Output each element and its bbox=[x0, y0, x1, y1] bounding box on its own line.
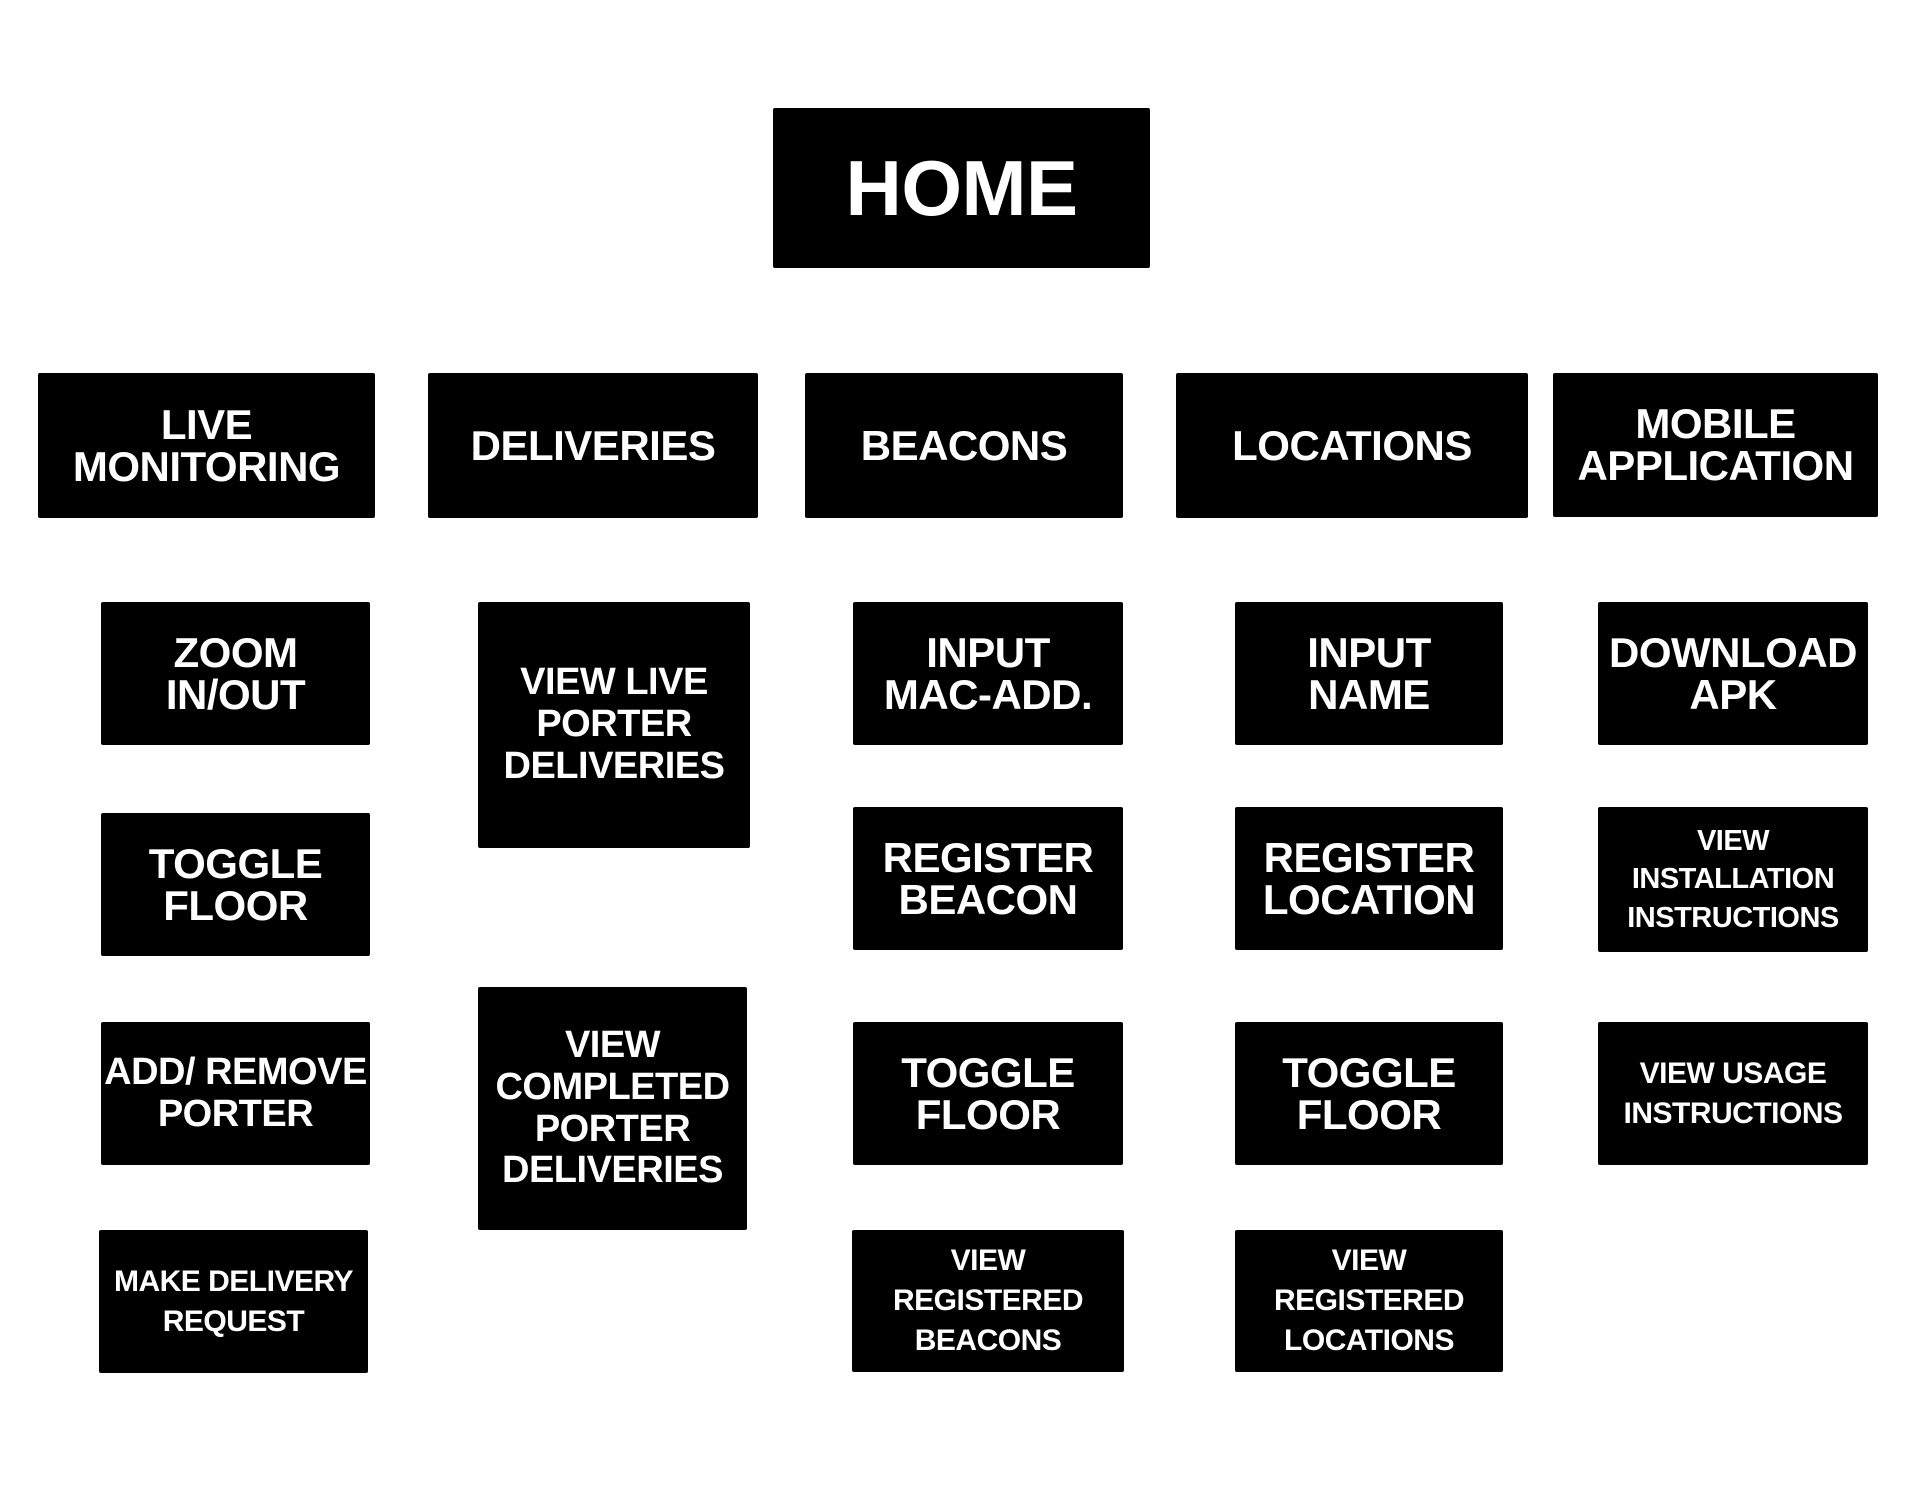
node-deliveries: DELIVERIES bbox=[428, 373, 758, 518]
node-home: HOME bbox=[773, 108, 1150, 268]
node-mobile-application: MOBILE APPLICATION bbox=[1553, 373, 1878, 517]
node-toggle-floor-beacons: TOGGLE FLOOR bbox=[853, 1022, 1123, 1165]
node-view-live-porter-deliveries: VIEW LIVE PORTER DELIVERIES bbox=[478, 602, 750, 848]
node-register-location: REGISTER LOCATION bbox=[1235, 807, 1503, 950]
node-toggle-floor-locations: TOGGLE FLOOR bbox=[1235, 1022, 1503, 1165]
node-view-registered-locations: VIEW REGISTERED LOCATIONS bbox=[1235, 1230, 1503, 1372]
node-download-apk: DOWNLOAD APK bbox=[1598, 602, 1868, 745]
node-beacons: BEACONS bbox=[805, 373, 1123, 518]
node-make-delivery-request: MAKE DELIVERY REQUEST bbox=[99, 1230, 368, 1373]
node-view-completed-porter-deliveries: VIEW COMPLETED PORTER DELIVERIES bbox=[478, 987, 747, 1230]
node-locations: LOCATIONS bbox=[1176, 373, 1528, 518]
node-input-name: INPUT NAME bbox=[1235, 602, 1503, 745]
node-live-monitoring: LIVE MONITORING bbox=[38, 373, 375, 518]
node-view-registered-beacons: VIEW REGISTERED BEACONS bbox=[852, 1230, 1124, 1372]
node-zoom-in-out: ZOOM IN/OUT bbox=[101, 602, 370, 745]
sitemap-diagram: HOME LIVE MONITORING DELIVERIES BEACONS … bbox=[0, 0, 1920, 1500]
node-add-remove-porter: ADD/ REMOVE PORTER bbox=[101, 1022, 370, 1165]
node-input-mac-add: INPUT MAC-ADD. bbox=[853, 602, 1123, 745]
node-register-beacon: REGISTER BEACON bbox=[853, 807, 1123, 950]
node-view-installation-instructions: VIEW INSTALLATION INSTRUCTIONS bbox=[1598, 807, 1868, 952]
node-toggle-floor-monitoring: TOGGLE FLOOR bbox=[101, 813, 370, 956]
node-view-usage-instructions: VIEW USAGE INSTRUCTIONS bbox=[1598, 1022, 1868, 1165]
